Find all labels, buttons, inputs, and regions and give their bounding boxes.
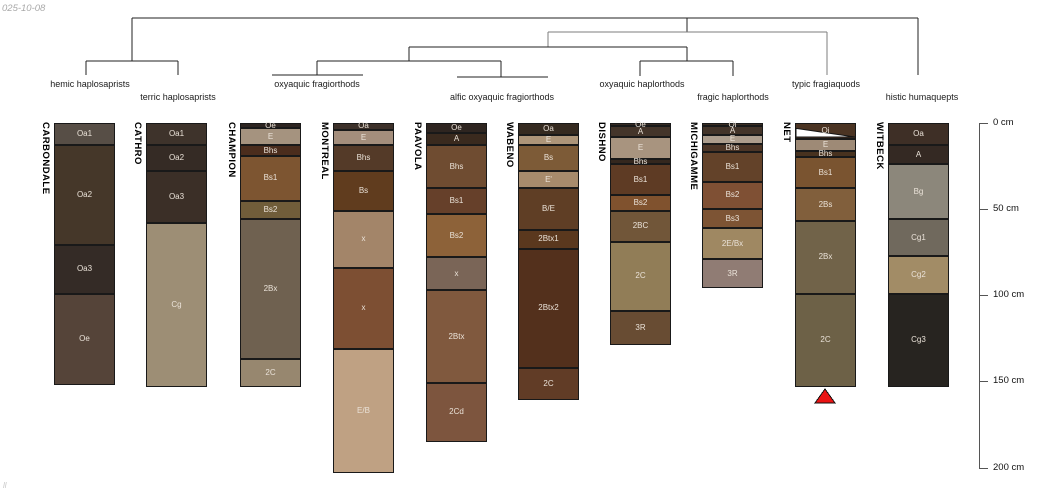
horizon-label: Bhs — [426, 162, 487, 172]
profile-name-witbeck: WITBECK — [874, 122, 885, 170]
profile-column-montreal: OaEBhsBsxxE/B — [333, 123, 394, 473]
horizon-label: Bs2 — [240, 205, 301, 215]
profile-column-dishno: OeAEBhsBs1Bs22BC2C3R — [610, 123, 671, 345]
dendrogram-taxon-label: hemic haplosaprists — [50, 79, 130, 89]
soil-profile-dendrogram-plot: 025-10-08 ll hemic haplosapriststerric h… — [0, 0, 1050, 500]
horizon-label: 3R — [702, 269, 763, 279]
horizon-label: Bs2 — [702, 190, 763, 200]
depth-axis-tick-label: 100 cm — [993, 289, 1024, 300]
red-triangle-marker — [815, 389, 835, 403]
profile-name-michigamme: MICHIGAMME — [688, 122, 699, 190]
horizon-label: Bhs — [795, 149, 856, 159]
horizon-label: Bs1 — [426, 196, 487, 206]
profile-name-cathro: CATHRO — [132, 122, 143, 165]
horizon-label: Oe — [54, 334, 115, 344]
dendrogram-taxon-label: terric haplosaprists — [140, 92, 216, 102]
horizon-label: Bs1 — [610, 175, 671, 185]
profile-column-michigamme: OiAEBhsBs1Bs2Bs32E/Bx3R — [702, 123, 763, 288]
horizon-label: Oa2 — [54, 190, 115, 200]
horizon-label: Bhs — [240, 146, 301, 156]
horizon-label: Oa1 — [146, 129, 207, 139]
profile-name-carbondale: CARBONDALE — [40, 122, 51, 195]
horizon-label: x — [333, 303, 394, 313]
dendrogram-taxon-label: fragic haplorthods — [697, 92, 769, 102]
horizon-label: Oa1 — [54, 129, 115, 139]
horizon-label: Bs3 — [702, 214, 763, 224]
horizon-label: E — [333, 133, 394, 143]
depth-axis-tick — [979, 295, 988, 296]
horizon-label: Bs2 — [426, 231, 487, 241]
horizon-label: Oe — [240, 121, 301, 131]
horizon-label: 2Btx — [426, 332, 487, 342]
profile-name-montreal: MONTREAL — [319, 122, 330, 180]
horizon-label: Bs2 — [610, 198, 671, 208]
horizon-label: Oa — [518, 124, 579, 134]
depth-axis-tick-label: 150 cm — [993, 375, 1024, 386]
horizon-label: Cg3 — [888, 335, 949, 345]
plot-date-label: 025-10-08 — [2, 3, 45, 14]
horizon-label: E' — [518, 175, 579, 185]
profile-column-net: OiEBhsBs12Bs2Bx2C — [795, 123, 856, 387]
corner-mark: ll — [3, 481, 7, 490]
profile-column-wabeno: OaEBsE'B/E2Btx12Btx22C — [518, 123, 579, 400]
depth-axis-tick — [979, 381, 988, 382]
horizon-label: Bs1 — [702, 162, 763, 172]
horizon-label: Cg2 — [888, 270, 949, 280]
depth-axis-tick-label: 0 cm — [993, 117, 1014, 128]
profile-column-champion: OeEBhsBs1Bs22Bx2C — [240, 123, 301, 387]
horizon-label: Cg1 — [888, 233, 949, 243]
horizon-label: 2E/Bx — [702, 239, 763, 249]
horizon-label: 2Cd — [426, 407, 487, 417]
horizon-label: Oa3 — [146, 192, 207, 202]
horizon-label: A — [888, 150, 949, 160]
horizon-label: Bg — [888, 187, 949, 197]
horizon-label: x — [426, 269, 487, 279]
dendrogram-taxon-label: oxyaquic haplorthods — [599, 79, 684, 89]
profile-name-net: NET — [781, 122, 792, 143]
horizon-label: Bhs — [702, 143, 763, 153]
horizon-label: 3R — [610, 323, 671, 333]
profile-column-witbeck: OaABgCg1Cg2Cg3 — [888, 123, 949, 387]
horizon-label: 2C — [795, 335, 856, 345]
horizon-label: 2C — [518, 379, 579, 389]
horizon-label: Bs — [518, 153, 579, 163]
horizon-label: Bhs — [333, 153, 394, 163]
horizon-label: 2C — [240, 368, 301, 378]
horizon-label: Oe — [426, 123, 487, 133]
horizon-label: Oa3 — [54, 264, 115, 274]
horizon-label: A — [610, 127, 671, 137]
depth-axis-tick-label: 50 cm — [993, 203, 1019, 214]
horizon-label: E — [610, 143, 671, 153]
horizon-label: Bs1 — [240, 173, 301, 183]
horizon-label: Bhs — [610, 157, 671, 167]
depth-axis-tick — [979, 209, 988, 210]
dendrogram-taxon-label: histic humaquepts — [886, 92, 959, 102]
horizon-label: 2Bx — [795, 252, 856, 262]
profile-name-paavola: PAAVOLA — [412, 122, 423, 171]
depth-axis-tick — [979, 468, 988, 469]
horizon-label: Oa — [333, 121, 394, 131]
horizon-label: Oa — [888, 129, 949, 139]
depth-axis-tick-label: 200 cm — [993, 462, 1024, 473]
horizon-label: Oi — [795, 126, 856, 136]
horizon-label: x — [333, 234, 394, 244]
profile-name-dishno: DISHNO — [596, 122, 607, 162]
profile-column-carbondale: Oa1Oa2Oa3Oe — [54, 123, 115, 385]
horizon-label: 2Bx — [240, 284, 301, 294]
horizon-label: 2Btx2 — [518, 303, 579, 313]
horizon-label: E — [240, 132, 301, 142]
horizon-label: Cg — [146, 300, 207, 310]
horizon-label: E/B — [333, 406, 394, 416]
horizon-label: B/E — [518, 204, 579, 214]
profile-name-wabeno: WABENO — [504, 122, 515, 168]
horizon-label: 2Bs — [795, 200, 856, 210]
depth-axis-tick — [979, 123, 988, 124]
profile-column-cathro: Oa1Oa2Oa3Cg — [146, 123, 207, 387]
profile-name-champion: CHAMPION — [226, 122, 237, 178]
dendrogram-taxon-label: oxyaquic fragiorthods — [274, 79, 360, 89]
horizon-label: 2C — [610, 271, 671, 281]
horizon-label: Bs — [333, 186, 394, 196]
horizon-label: Oa2 — [146, 153, 207, 163]
horizon-label: Bs1 — [795, 168, 856, 178]
dendrogram-taxon-label: alfic oxyaquic fragiorthods — [450, 92, 554, 102]
horizon-label: 2BC — [610, 221, 671, 231]
horizon-label: A — [426, 134, 487, 144]
horizon-label: 2Btx1 — [518, 234, 579, 244]
profile-column-paavola: OeABhsBs1Bs2x2Btx2Cd — [426, 123, 487, 442]
dendrogram-taxon-label: typic fragiaquods — [792, 79, 860, 89]
horizon-label: E — [518, 135, 579, 145]
